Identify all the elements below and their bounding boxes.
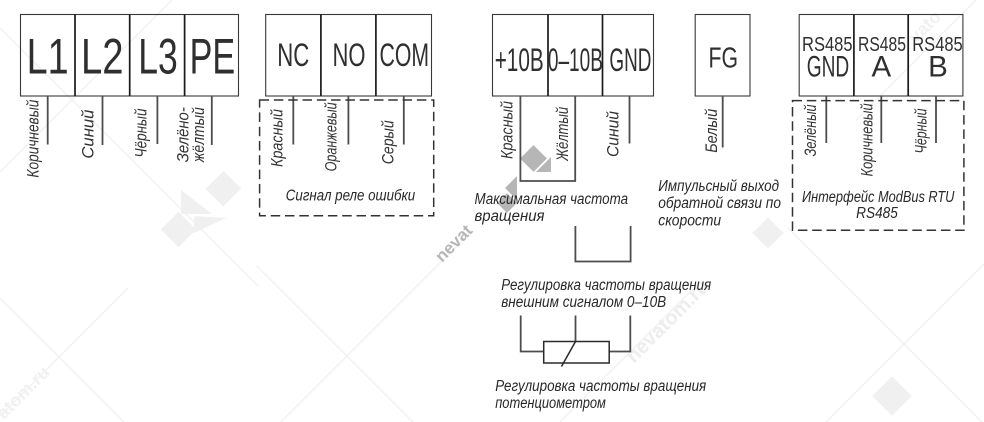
svg-text:COM: COM bbox=[380, 37, 430, 73]
svg-text:Чёрный: Чёрный bbox=[132, 109, 150, 158]
svg-text:Синий: Синий bbox=[79, 110, 97, 159]
svg-text:Красный: Красный bbox=[269, 109, 287, 167]
svg-text:Интерфейс ModBus RTU: Интерфейс ModBus RTU bbox=[802, 189, 955, 206]
svg-text:+10В: +10В bbox=[495, 42, 544, 78]
svg-text:Зелёный: Зелёный bbox=[802, 104, 820, 156]
svg-text:Импульсный выход: Импульсный выход bbox=[658, 178, 779, 195]
svg-text:PE: PE bbox=[190, 29, 236, 85]
svg-text:Коричневый: Коричневый bbox=[25, 100, 43, 178]
svg-text:A: A bbox=[872, 50, 892, 83]
svg-text:Регулировка частоты вращения: Регулировка частоты вращения bbox=[501, 277, 711, 294]
svg-text:Сигнал реле ошибки: Сигнал реле ошибки bbox=[286, 187, 416, 204]
svg-text:Максимальная частота: Максимальная частота bbox=[475, 191, 629, 208]
svg-text:Серый: Серый bbox=[379, 120, 397, 164]
svg-text:0–10В: 0–10В bbox=[548, 42, 603, 78]
svg-text:GND: GND bbox=[807, 50, 850, 83]
svg-text:скорости: скорости bbox=[658, 213, 721, 230]
svg-text:RS485: RS485 bbox=[856, 205, 898, 222]
svg-text:L2: L2 bbox=[81, 29, 124, 85]
svg-text:GND: GND bbox=[609, 42, 651, 78]
svg-text:NC: NC bbox=[277, 37, 309, 73]
svg-text:NO: NO bbox=[333, 37, 366, 73]
svg-text:Регулировка частоты вращения: Регулировка частоты вращения bbox=[495, 378, 706, 395]
svg-text:внешним сигналом 0–10В: внешним сигналом 0–10В bbox=[501, 294, 666, 311]
svg-text:обратной связи по: обратной связи по bbox=[658, 195, 781, 212]
svg-text:Оранжевый: Оранжевый bbox=[322, 102, 340, 171]
svg-text:L1: L1 bbox=[27, 29, 69, 85]
svg-text:вращения: вращения bbox=[475, 208, 545, 225]
svg-text:Чёрный: Чёрный bbox=[913, 109, 931, 154]
svg-text:FG: FG bbox=[709, 43, 739, 75]
svg-text:Белый: Белый bbox=[703, 109, 721, 153]
svg-text:потенциометром: потенциометром bbox=[495, 395, 606, 412]
svg-text:L3: L3 bbox=[138, 29, 178, 85]
svg-text:Жёлтый: Жёлтый bbox=[554, 107, 572, 162]
svg-text:Синий: Синий bbox=[604, 111, 622, 157]
svg-text:B: B bbox=[928, 50, 948, 83]
svg-text:Красный: Красный bbox=[499, 101, 517, 159]
svg-text:жёлтый: жёлтый bbox=[190, 107, 208, 163]
svg-text:Коричневый: Коричневый bbox=[858, 103, 876, 176]
